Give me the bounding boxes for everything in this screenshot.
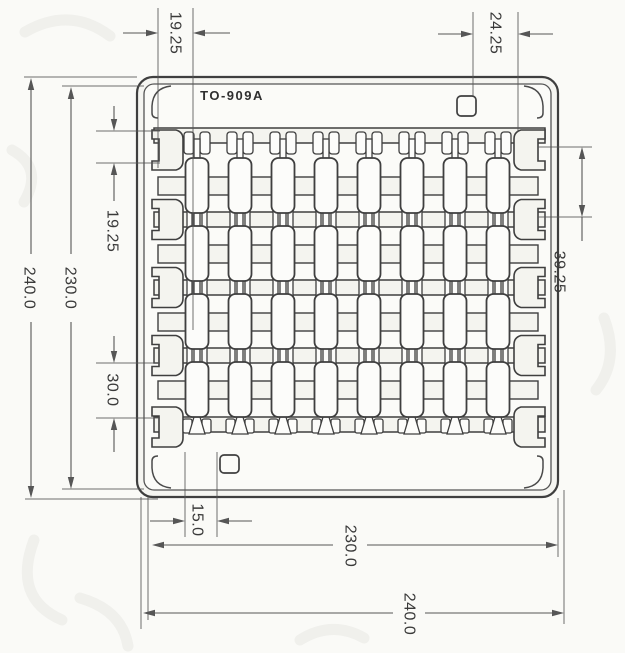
dim-bottom-outer-label: 240.0 xyxy=(401,593,418,636)
connector-bar xyxy=(338,313,358,331)
connector-bar xyxy=(338,381,358,399)
connector-bar xyxy=(467,245,487,263)
dim-top-right-label: 24.25 xyxy=(487,12,504,55)
top-tab xyxy=(243,132,253,154)
unit-capsule xyxy=(358,158,381,213)
connector-bar xyxy=(158,313,186,331)
unit-capsule xyxy=(358,362,381,417)
dim-right-pitch-label: 39.25 xyxy=(551,251,568,294)
tie-bar xyxy=(194,139,200,160)
index-hole-bottom-left xyxy=(220,455,239,473)
top-tab xyxy=(200,132,210,154)
connector-bar xyxy=(295,381,315,399)
top-tab xyxy=(372,132,382,154)
rail-strip xyxy=(154,212,545,227)
connector-bar xyxy=(381,177,401,195)
connector-bar xyxy=(209,177,229,195)
unit-capsule xyxy=(487,226,510,281)
unit-capsule xyxy=(444,226,467,281)
unit-capsule xyxy=(315,294,338,349)
unit-capsule xyxy=(229,294,252,349)
dim-top-left: 19.25 xyxy=(123,12,230,55)
tie-bar xyxy=(366,139,372,160)
technical-drawing: TO-909A 19.25 2 xyxy=(0,0,625,653)
connector-bar xyxy=(209,245,229,263)
connector-bar xyxy=(381,381,401,399)
tie-bar xyxy=(280,139,286,160)
connector-bar xyxy=(381,245,401,263)
top-tab xyxy=(485,132,495,154)
unit-capsule xyxy=(487,158,510,213)
top-tab xyxy=(356,132,366,154)
connector-bar xyxy=(510,177,539,195)
unit-capsule xyxy=(358,226,381,281)
connector-bar xyxy=(158,381,186,399)
tie-bar xyxy=(237,139,243,160)
unit-capsule xyxy=(444,362,467,417)
dim-left-outer: 240.0 xyxy=(21,78,38,498)
top-tab xyxy=(313,132,323,154)
tie-bar xyxy=(495,139,501,160)
dim-bottom-inner: 230.0 xyxy=(152,525,558,568)
top-tab xyxy=(270,132,280,154)
connector-bar xyxy=(295,313,315,331)
unit-capsule xyxy=(358,294,381,349)
connector-bar xyxy=(338,245,358,263)
unit-capsule xyxy=(229,158,252,213)
top-tab xyxy=(227,132,237,154)
unit-capsule xyxy=(401,362,424,417)
unit-capsule xyxy=(272,158,295,213)
connector-bar xyxy=(424,381,444,399)
dim-bottom-lead: 15.0 xyxy=(150,503,252,536)
drawing-canvas: TO-909A 19.25 2 xyxy=(0,0,625,653)
connector-bar xyxy=(252,381,272,399)
index-hole-top-right xyxy=(457,96,476,116)
connector-bar xyxy=(209,381,229,399)
rail-strip xyxy=(154,348,545,363)
connector-bar xyxy=(252,245,272,263)
connector-bar xyxy=(209,313,229,331)
connector-bar xyxy=(510,245,539,263)
connector-bar xyxy=(252,313,272,331)
top-tab xyxy=(399,132,409,154)
unit-capsule xyxy=(315,362,338,417)
connector-bar xyxy=(467,177,487,195)
unit-capsule xyxy=(444,158,467,213)
unit-capsule xyxy=(186,158,209,213)
connector-bar xyxy=(467,313,487,331)
connector-bar xyxy=(158,177,186,195)
unit-capsule xyxy=(186,294,209,349)
top-tab xyxy=(458,132,468,154)
unit-capsule xyxy=(315,226,338,281)
rail-strip xyxy=(154,280,545,295)
dim-bottom-lead-label: 15.0 xyxy=(189,503,206,536)
unit-capsule xyxy=(401,158,424,213)
dim-left-offset-label: 19.25 xyxy=(104,210,121,253)
dim-left-inner: 230.0 xyxy=(62,87,79,489)
unit-capsule xyxy=(229,226,252,281)
frame-part-number: TO-909A xyxy=(200,88,264,103)
connector-bar xyxy=(295,177,315,195)
top-tab xyxy=(501,132,511,154)
dim-top-right: 24.25 xyxy=(438,12,553,55)
dim-left-pitch-label: 30.0 xyxy=(104,373,121,406)
connector-bar xyxy=(510,381,539,399)
top-tab xyxy=(329,132,339,154)
dim-left-outer-label: 240.0 xyxy=(21,267,38,310)
unit-capsule xyxy=(487,294,510,349)
unit-capsule xyxy=(272,294,295,349)
unit-capsule xyxy=(315,158,338,213)
top-tab xyxy=(286,132,296,154)
dim-left-offset: 19.25 xyxy=(104,106,121,252)
top-tab xyxy=(442,132,452,154)
dim-top-left-label: 19.25 xyxy=(167,12,184,55)
connector-bar xyxy=(338,177,358,195)
connector-bar xyxy=(510,313,539,331)
top-tab xyxy=(415,132,425,154)
unit-capsule xyxy=(186,362,209,417)
tie-bar xyxy=(452,139,458,160)
unit-capsule xyxy=(401,294,424,349)
tie-bar xyxy=(409,139,415,160)
connector-bar xyxy=(424,245,444,263)
unit-capsule xyxy=(444,294,467,349)
connector-bar xyxy=(424,313,444,331)
unit-capsule xyxy=(401,226,424,281)
connector-bar xyxy=(467,381,487,399)
connector-bar xyxy=(424,177,444,195)
connector-bar xyxy=(252,177,272,195)
dim-left-pitch: 30.0 xyxy=(104,336,121,452)
unit-capsule xyxy=(186,226,209,281)
dim-left-inner-label: 230.0 xyxy=(62,267,79,310)
unit-capsule xyxy=(272,362,295,417)
connector-bar xyxy=(158,245,186,263)
unit-capsule xyxy=(487,362,510,417)
dim-bottom-inner-label: 230.0 xyxy=(342,525,359,568)
unit-capsule xyxy=(272,226,295,281)
unit-capsule xyxy=(229,362,252,417)
connector-bar xyxy=(295,245,315,263)
connector-bar xyxy=(381,313,401,331)
tie-bar xyxy=(323,139,329,160)
